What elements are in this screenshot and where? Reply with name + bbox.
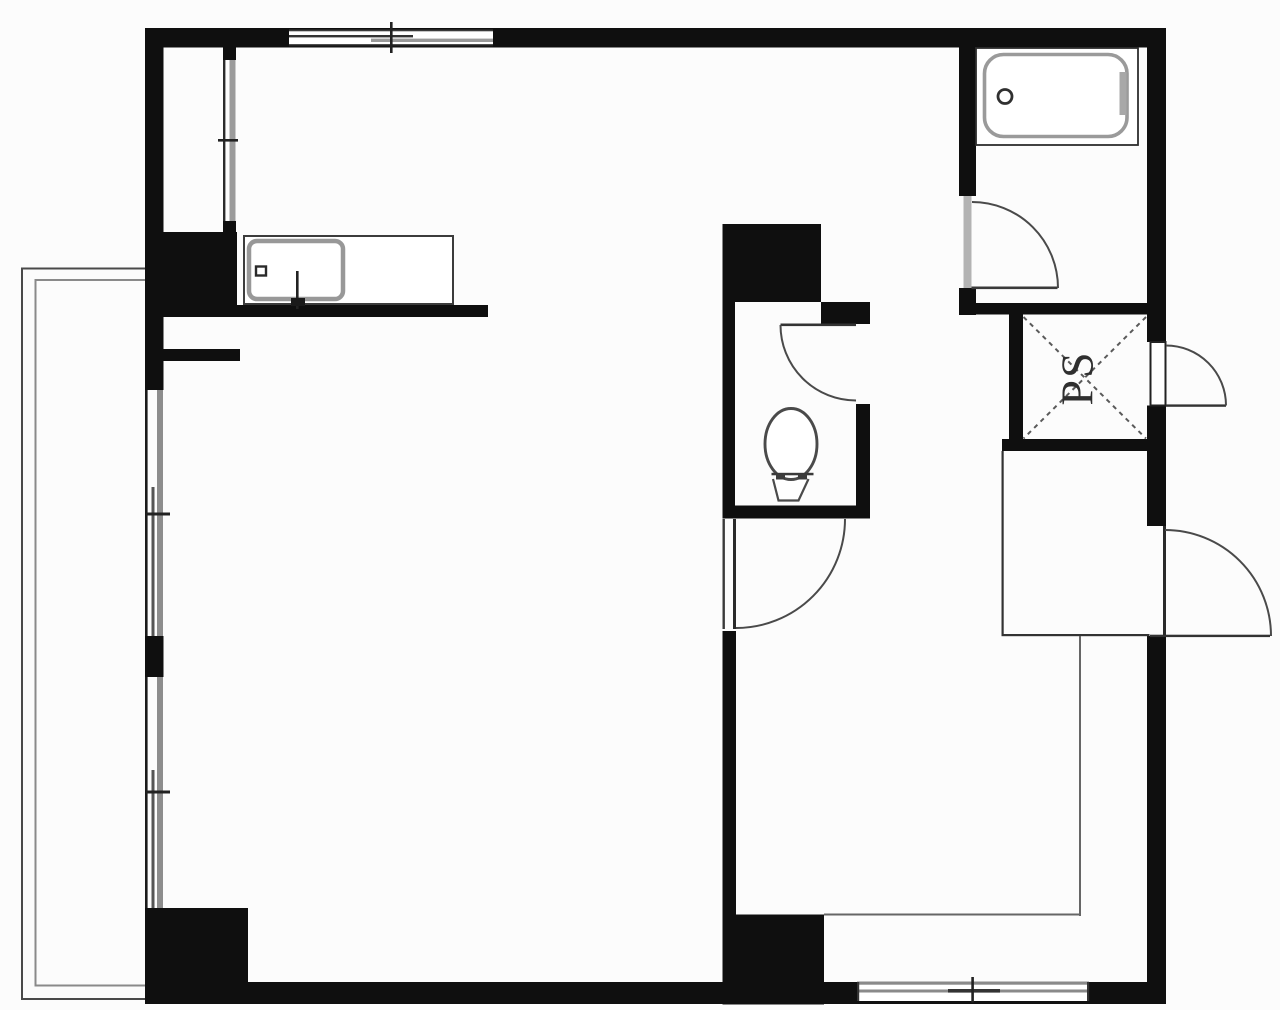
svg-text:PS: PS [1052,350,1103,405]
